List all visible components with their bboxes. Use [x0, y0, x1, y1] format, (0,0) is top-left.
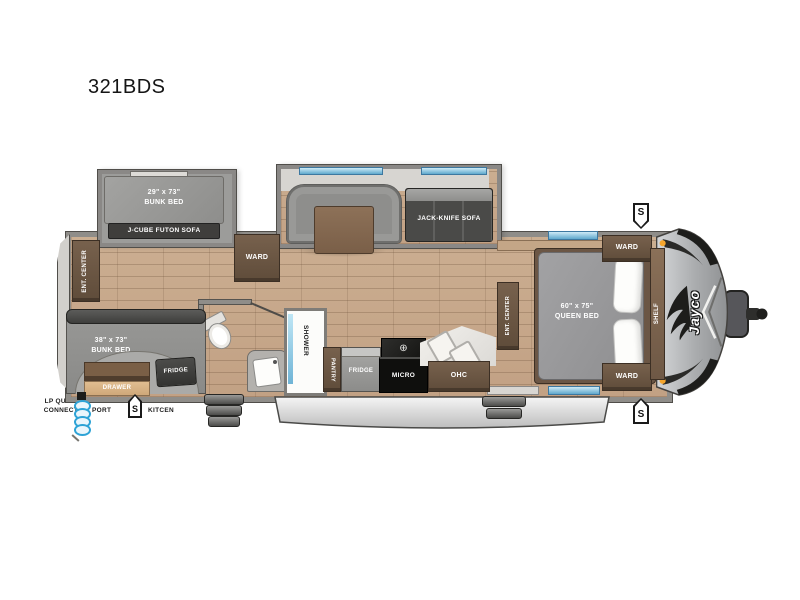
awning: [272, 396, 612, 434]
ward-cabinet-mid: WARD: [234, 234, 280, 282]
pantry-label: PANTRY: [329, 358, 336, 382]
floorplan-canvas: 321BDS 29" x 73" BUNK BED J-CUBE FUTON S…: [0, 0, 800, 600]
jack-knife-sofa-back: [406, 189, 492, 201]
ward-cabinet-bottom: WARD: [602, 363, 652, 391]
lower-bunk-bolster: [66, 309, 206, 324]
shelf: SHELF: [650, 248, 665, 380]
jack-knife-sofa-label: JACK-KNIFE SOFA: [406, 215, 492, 223]
ent-center-bedroom: ENT. CENTER: [497, 282, 519, 350]
ward-cabinet-top: WARD: [602, 235, 652, 262]
outside-kitchen-fridge-label: FRIDGE: [164, 368, 189, 377]
bathroom-sink: [252, 356, 282, 387]
jack-knife-sofa: JACK-KNIFE SOFA: [405, 188, 493, 242]
spray-port-label-line2: PORT: [92, 407, 126, 415]
pantry-cabinet: PANTRY: [323, 347, 341, 392]
outside-kitchen-drawer-label: DRAWER: [103, 385, 131, 392]
ent-center-rear-label: ENT. CENTER: [82, 250, 89, 293]
j-cube-futon-sofa: J-CUBE FUTON SOFA: [108, 223, 220, 239]
queen-bed-size-label: 60" x 75": [539, 303, 615, 311]
bunk-bed-name-label: BUNK BED: [105, 199, 223, 207]
spray-port-icon: [74, 392, 91, 439]
queen-bed-name-label: QUEEN BED: [539, 313, 615, 321]
lp-quick-connect-label-line2: CONNECT: [36, 407, 78, 415]
kitchen-fridge-label: FRIDGE: [342, 368, 380, 375]
outside-kitchen-fridge: FRIDGE: [155, 357, 197, 388]
ohc-cabinet: OHC: [428, 361, 490, 392]
bathroom-faucet: [273, 360, 277, 364]
ward-mid-label: WARD: [246, 254, 269, 262]
bunk-bed-29x73: 29" x 73" BUNK BED: [104, 176, 224, 224]
bathroom-vanity: [247, 350, 288, 392]
jayco-logo: Jayco: [684, 268, 704, 356]
kitchen-fridge: FRIDGE: [341, 347, 381, 392]
s-badge-top: S: [633, 203, 649, 229]
bunk-bed-size-label: 29" x 73": [105, 189, 223, 197]
bedroom-window-top: [548, 231, 598, 240]
bunk-slideout: 29" x 73" BUNK BED J-CUBE FUTON SOFA: [98, 170, 236, 247]
dinette-slideout: JACK-KNIFE SOFA: [277, 165, 501, 248]
outside-kitchen-arch: DRAWER FRIDGE: [75, 351, 199, 394]
dinette-window-left: [299, 167, 383, 175]
cooktop: ⊕: [381, 338, 426, 359]
ohc-label: OHC: [451, 372, 467, 380]
shower: SHOWER: [284, 308, 327, 396]
ent-center-rear: ENT. CENTER: [72, 240, 100, 302]
shelf-label: SHELF: [654, 303, 661, 324]
bathroom-top-wall: [199, 300, 251, 304]
lower-bunk-bed: 38" x 73" BUNK BED DRAWER FRIDGE: [66, 316, 206, 394]
outside-kitchen-label-line2: KITCEN: [148, 407, 188, 415]
kitchen-fridge-top: [342, 348, 380, 357]
marker-light-top: [660, 240, 666, 246]
shower-glass: [288, 314, 293, 384]
microwave-label: MICRO: [392, 372, 415, 380]
ent-center-bedroom-label: ENT. CENTER: [505, 296, 512, 335]
outside-kitchen-badge: S: [128, 394, 142, 418]
queen-pillow-top: [613, 256, 644, 313]
shower-label: SHOWER: [301, 325, 309, 356]
burner-icon: ⊕: [399, 344, 407, 354]
entry-door-threshold: [487, 386, 539, 395]
dinette-table: [314, 206, 374, 254]
s-badge-bottom: S: [633, 398, 649, 424]
model-number: 321BDS: [88, 76, 166, 99]
outside-kitchen-cabinet: [84, 362, 150, 383]
ward-top-label: WARD: [616, 244, 639, 252]
dinette-window-right: [421, 167, 487, 175]
bedroom-window-bottom: [548, 386, 600, 395]
lower-bunk-size-label: 38" x 73": [69, 337, 153, 345]
futon-sofa-label: J-CUBE FUTON SOFA: [128, 227, 201, 235]
ward-bottom-label: WARD: [616, 373, 639, 381]
